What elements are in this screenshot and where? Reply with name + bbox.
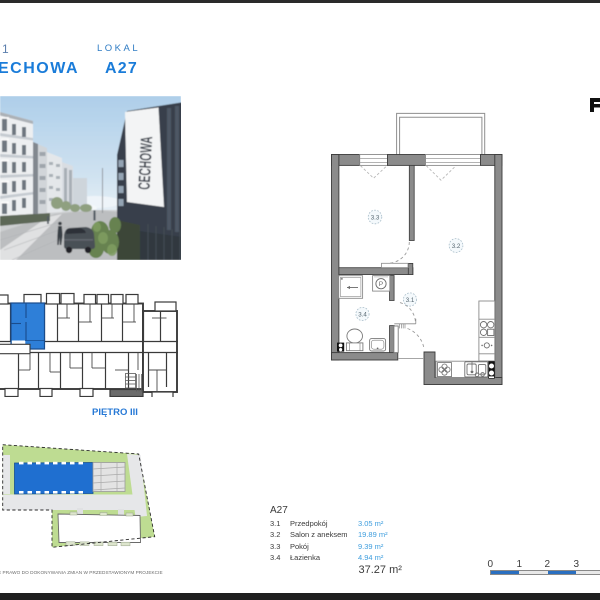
- svg-text:3.3: 3.3: [371, 214, 380, 221]
- svg-text:3.4: 3.4: [358, 311, 367, 318]
- svg-text:3.2: 3.2: [452, 243, 461, 250]
- svg-text:P: P: [379, 281, 384, 288]
- svg-text:3.1: 3.1: [406, 297, 415, 304]
